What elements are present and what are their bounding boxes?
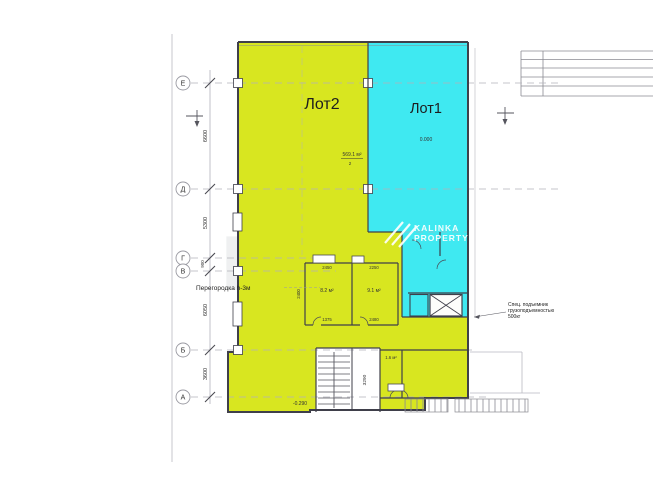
lot2-label[interactable]: Лот2 <box>304 96 339 113</box>
title-block-table <box>521 51 653 96</box>
room2-area: 9.1 м² <box>367 288 381 294</box>
corridor-dim: 3290 <box>362 374 368 385</box>
axis-label-g: Г <box>181 256 185 263</box>
room1-area: 8.2 м² <box>320 288 334 294</box>
dim-g-v: 900 <box>200 260 205 268</box>
section-mark-icon <box>186 110 203 127</box>
svg-text:569.1 м²: 569.1 м² <box>342 152 361 158</box>
lot1-elevation: 0.000 <box>420 137 433 143</box>
wc-area: 1.6 м² <box>385 355 397 360</box>
section-mark-icon-right <box>497 107 514 125</box>
room2-dim-top: 2250 <box>369 265 379 270</box>
axis-label-a: А <box>181 395 186 402</box>
lift-note: Спец. подъемник грузоподъемностью 500кг <box>474 302 555 320</box>
dim-d-g: 5300 <box>203 217 209 229</box>
axis-label-b: Б <box>181 348 186 355</box>
room2-dim-bot: 2480 <box>369 317 379 322</box>
dimension-line-vertical: 6600 5300 900 6050 3600 <box>200 70 215 404</box>
brand-line2: PROPERTY <box>414 233 469 243</box>
axis-bubbles: Е Д Г В Б А <box>176 76 190 404</box>
dim-e-d: 6600 <box>203 130 209 142</box>
axis-label-v: В <box>181 269 186 276</box>
axis-label-d: Д <box>181 187 186 194</box>
brand-line1: KALINKA <box>414 223 459 233</box>
svg-text:Перегородка h-3м: Перегородка h-3м <box>196 285 251 292</box>
room1-dim-left: 2400 <box>296 289 301 299</box>
axis-label-e: Е <box>181 81 186 88</box>
dim-b-a: 3600 <box>203 368 209 380</box>
lot1-label[interactable]: Лот1 <box>410 101 442 117</box>
room1-dim-top: 2450 <box>322 265 332 270</box>
bottom-elevation: -0.290 <box>293 401 307 407</box>
dim-v-b: 6050 <box>203 304 209 316</box>
svg-text:500кг: 500кг <box>508 314 521 320</box>
room1-dim-bot: 1375 <box>322 317 332 322</box>
floor-plan-page: EST 6600 5300 900 6050 3600 Е <box>0 0 653 489</box>
floor-plan-drawing: EST 6600 5300 900 6050 3600 Е <box>0 0 653 489</box>
